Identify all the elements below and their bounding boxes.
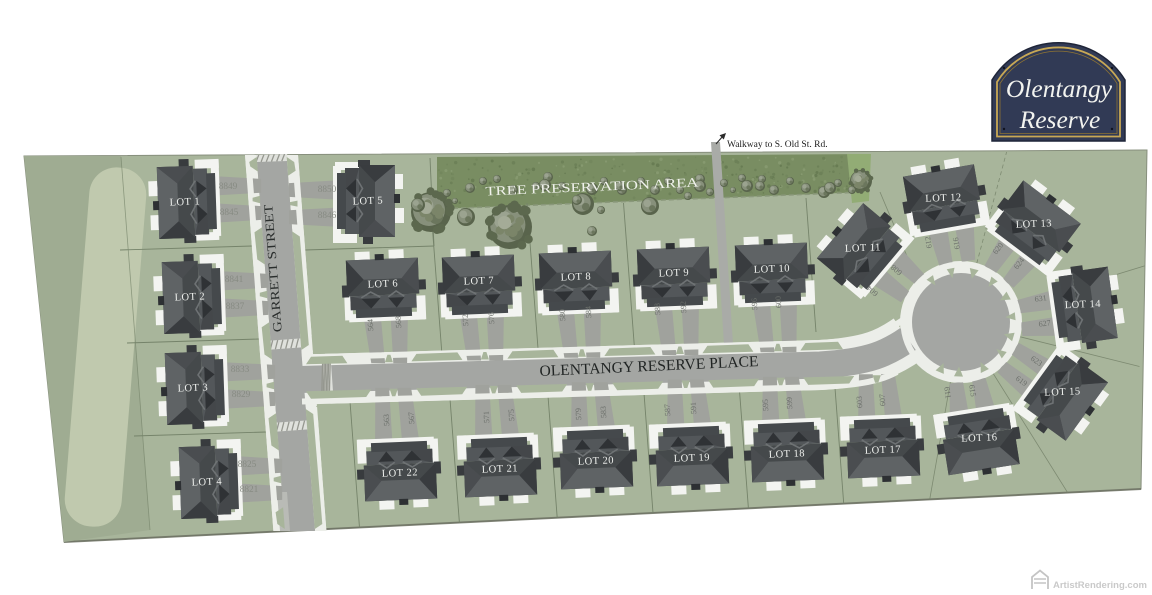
- svg-text:8825: 8825: [238, 460, 257, 470]
- svg-text:8846: 8846: [318, 211, 337, 221]
- svg-text:631: 631: [1034, 293, 1047, 304]
- svg-text:LOT 1: LOT 1: [169, 196, 200, 208]
- svg-text:ArtistRendering.com: ArtistRendering.com: [1053, 580, 1147, 591]
- svg-text:LOT 9: LOT 9: [658, 267, 689, 279]
- svg-text:580: 580: [558, 309, 567, 321]
- svg-text:596: 596: [750, 298, 759, 310]
- svg-text:LOT 8: LOT 8: [560, 271, 591, 283]
- svg-text:LOT 11: LOT 11: [845, 242, 881, 254]
- svg-text:587: 587: [663, 404, 672, 416]
- svg-text:LOT 3: LOT 3: [177, 382, 208, 394]
- svg-text:568: 568: [394, 316, 403, 328]
- svg-text:8829: 8829: [232, 390, 251, 400]
- svg-text:627: 627: [1038, 318, 1051, 329]
- svg-text:564: 564: [366, 319, 375, 331]
- svg-text:607: 607: [878, 394, 887, 406]
- svg-text:LOT 19: LOT 19: [674, 452, 711, 464]
- svg-text:588: 588: [653, 303, 662, 315]
- svg-text:567: 567: [407, 412, 416, 424]
- svg-text:LOT 4: LOT 4: [191, 476, 222, 488]
- svg-text:584: 584: [584, 306, 593, 318]
- svg-text:8850: 8850: [318, 185, 337, 195]
- svg-text:8845: 8845: [220, 208, 239, 218]
- svg-text:LOT 2: LOT 2: [174, 291, 205, 303]
- svg-text:LOT 21: LOT 21: [482, 463, 519, 475]
- svg-text:615: 615: [967, 384, 978, 397]
- svg-text:LOT 13: LOT 13: [1016, 218, 1053, 230]
- svg-text:Reserve: Reserve: [1019, 105, 1101, 134]
- svg-text:LOT 14: LOT 14: [1065, 299, 1102, 311]
- svg-text:LOT 16: LOT 16: [961, 432, 998, 444]
- svg-text:Walkway to S. Old St. Rd.: Walkway to S. Old St. Rd.: [727, 140, 828, 150]
- svg-text:571: 571: [482, 411, 491, 423]
- svg-text:576: 576: [487, 312, 496, 324]
- svg-text:600: 600: [774, 296, 783, 308]
- svg-text:563: 563: [382, 414, 391, 426]
- svg-text:LOT 17: LOT 17: [865, 444, 902, 456]
- svg-text:LOT 22: LOT 22: [382, 467, 419, 479]
- svg-text:LOT 10: LOT 10: [754, 263, 791, 275]
- svg-text:8849: 8849: [219, 182, 238, 192]
- svg-text:611: 611: [942, 386, 953, 399]
- svg-text:583: 583: [599, 406, 608, 418]
- svg-text:592: 592: [679, 301, 688, 313]
- svg-text:575: 575: [507, 409, 516, 421]
- svg-text:8837: 8837: [226, 302, 245, 312]
- svg-text:579: 579: [574, 408, 583, 420]
- svg-text:8821: 8821: [240, 485, 259, 495]
- svg-text:LOT 12: LOT 12: [925, 192, 962, 204]
- svg-text:595: 595: [761, 399, 770, 411]
- svg-text:LOT 15: LOT 15: [1044, 386, 1081, 398]
- svg-text:LOT 7: LOT 7: [463, 275, 494, 287]
- svg-text:8841: 8841: [225, 275, 244, 285]
- svg-text:LOT 20: LOT 20: [578, 455, 615, 467]
- svg-text:603: 603: [855, 396, 864, 408]
- svg-text:599: 599: [785, 397, 794, 409]
- svg-text:LOT 6: LOT 6: [367, 278, 398, 290]
- svg-text:Olentangy: Olentangy: [1006, 74, 1113, 103]
- svg-text:LOT 5: LOT 5: [352, 195, 383, 207]
- svg-text:LOT 18: LOT 18: [769, 448, 806, 460]
- svg-text:8833: 8833: [231, 365, 250, 375]
- svg-text:572: 572: [461, 314, 470, 326]
- svg-text:591: 591: [689, 402, 698, 414]
